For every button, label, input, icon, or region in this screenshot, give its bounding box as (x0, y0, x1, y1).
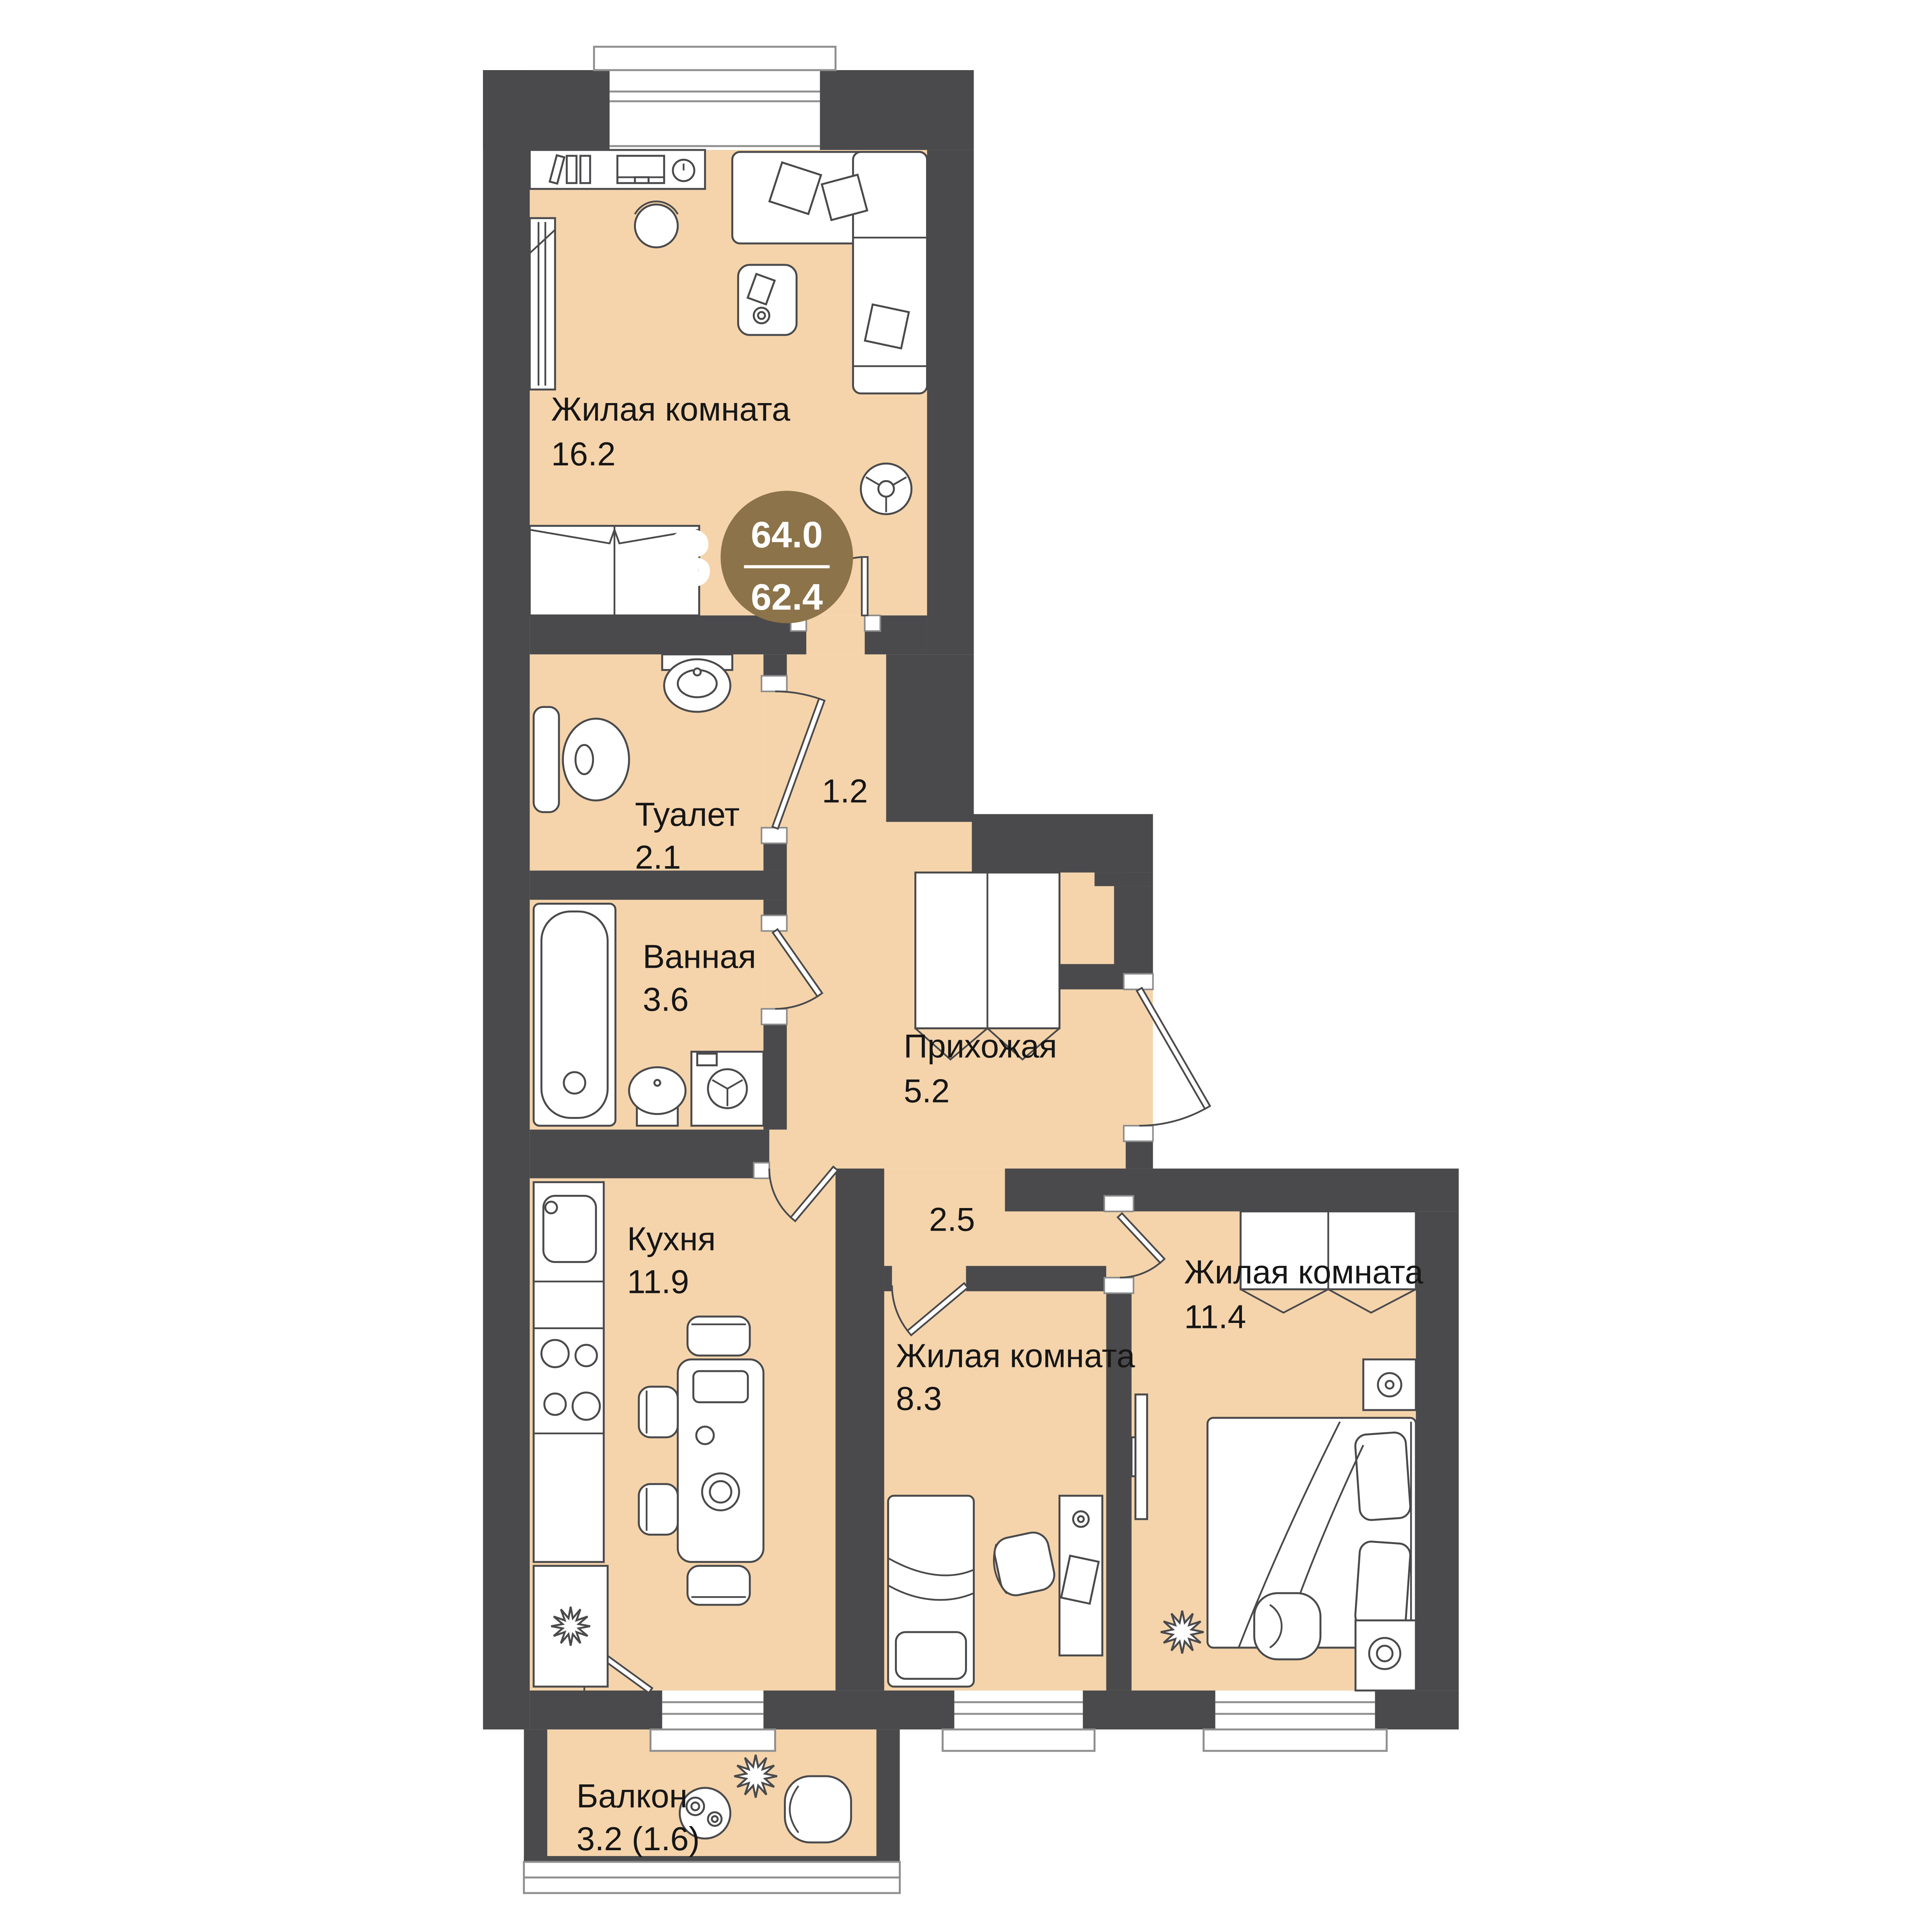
wall-sink-icon (662, 654, 732, 712)
wall-room2-top (966, 1266, 1106, 1291)
badge-living-area: 62.4 (751, 576, 823, 618)
window-icon (594, 47, 835, 150)
kitchen-sink-icon (543, 1196, 596, 1262)
desk-icon (530, 150, 705, 189)
desk-icon (1060, 1496, 1102, 1655)
wall-hall-top (972, 814, 1153, 872)
living-room-1-door-gap (806, 615, 865, 654)
vanity-icon (1356, 1620, 1416, 1691)
armchair-icon (785, 1776, 851, 1842)
wall (1114, 886, 1153, 964)
washing-machine-icon (691, 1052, 763, 1126)
living-room-2-area: 8.3 (896, 1381, 942, 1418)
floor-plan: Жилая комната 16.2 Туалет 2.1 1.2 Ванная… (0, 0, 1932, 1932)
badge-total-area: 64.0 (751, 514, 823, 555)
bed-single-icon (888, 1496, 974, 1687)
pouf-icon (861, 463, 911, 514)
bathroom-label: Ванная (643, 939, 756, 976)
wall-left (483, 70, 530, 1729)
wall-right-top-block (927, 150, 974, 654)
chair-icon (639, 1387, 678, 1437)
kitchen-door-gap (769, 1130, 835, 1169)
wall-bath-bottom (530, 1130, 769, 1178)
nightstand-icon (1363, 1360, 1416, 1410)
wall-bath-right-b (763, 1009, 787, 1130)
window-icon (650, 1691, 775, 1751)
balcony-glazing (524, 1862, 900, 1893)
hallway-niche-floor (1060, 886, 1114, 964)
armchair-icon (1254, 1593, 1321, 1659)
balcony-label: Балкон (576, 1778, 687, 1815)
living-room-3-label: Жилая комната (1184, 1254, 1424, 1291)
kitchen-area: 11.9 (627, 1264, 689, 1301)
wall-balcony-right (876, 1729, 900, 1862)
hallway-area: 5.2 (903, 1073, 949, 1110)
wall-kitchen-divider (835, 1169, 884, 1691)
bathtub-icon (534, 903, 615, 1125)
balcony-area: 3.2 (1.6) (576, 1821, 700, 1858)
wall (1095, 872, 1153, 886)
pedestal-sink-icon (629, 1067, 685, 1126)
living-room-1-label: Жилая комната (551, 391, 791, 428)
window-icon (942, 1691, 1094, 1751)
wall-balcony-left (524, 1729, 547, 1862)
coffee-table-icon (738, 265, 796, 335)
corridor-2-area: 2.5 (929, 1201, 975, 1238)
toilet-label: Туалет (635, 796, 740, 833)
living-room-3-area: 11.4 (1184, 1299, 1246, 1336)
hallway-label: Прихожая (903, 1028, 1057, 1065)
corridor-1-area: 1.2 (822, 773, 868, 810)
chair-icon (687, 1566, 750, 1605)
dining-table-icon (678, 1360, 763, 1562)
window-icon (1204, 1691, 1387, 1751)
shelf-cabinet-icon (530, 218, 555, 389)
bathroom-area: 3.6 (643, 981, 689, 1018)
fridge-icon (534, 1566, 608, 1687)
badge-rooms-count: 3 (667, 512, 713, 604)
chair-icon (687, 1317, 750, 1356)
kitchen-label: Кухня (627, 1221, 715, 1258)
toilet-area: 2.1 (635, 839, 681, 876)
wall (530, 615, 806, 654)
wall-hall-bottom-big (1005, 1169, 1459, 1212)
chair-icon (639, 1484, 678, 1535)
living-room-1-area: 16.2 (551, 436, 615, 473)
wall (884, 1266, 892, 1291)
living-room-2-label: Жилая комната (896, 1338, 1135, 1375)
wall (886, 654, 974, 822)
